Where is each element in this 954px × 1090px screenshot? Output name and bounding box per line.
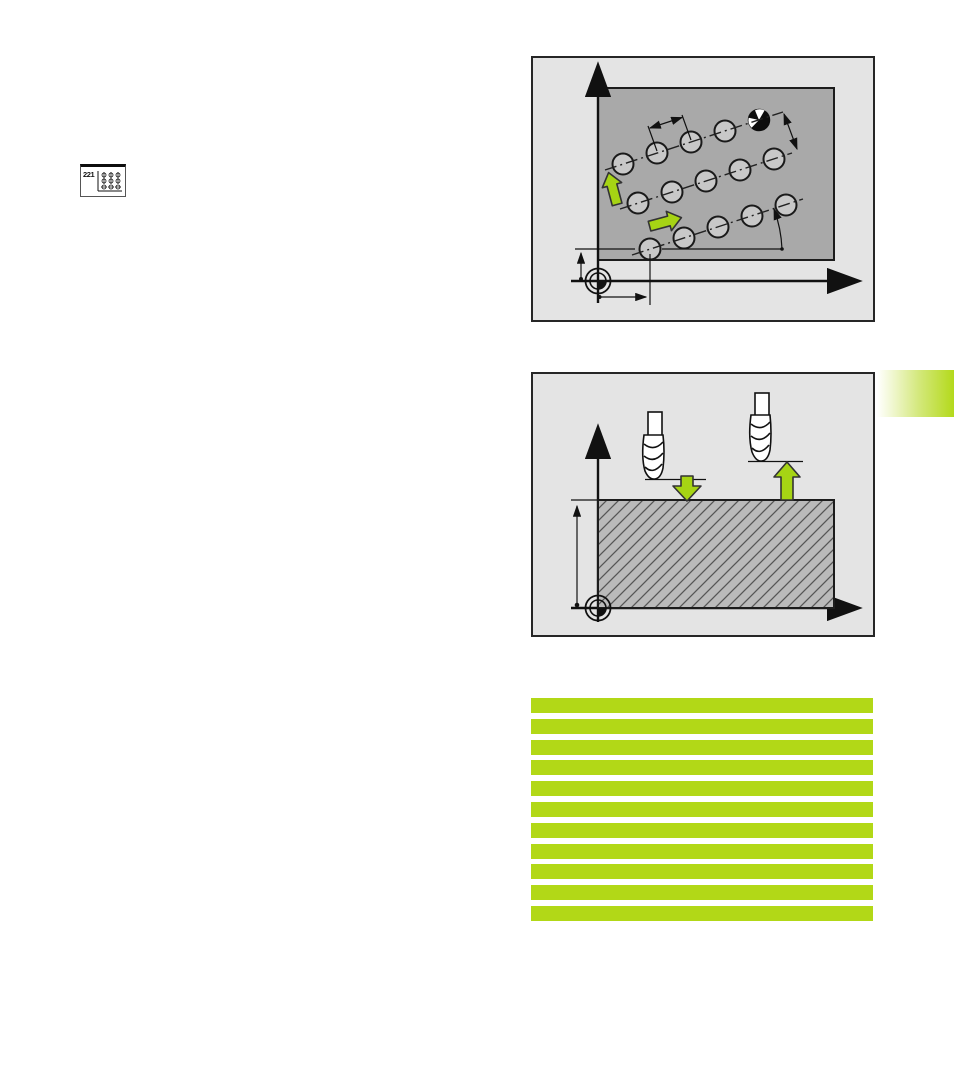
hole-pattern-figure xyxy=(531,56,875,322)
highlight-bar xyxy=(531,844,873,859)
highlight-bar xyxy=(531,698,873,713)
highlight-bar xyxy=(531,802,873,817)
workpiece-cross-section xyxy=(598,500,834,608)
tool-infeed-retract-figure xyxy=(531,372,875,637)
datum-symbol-icon xyxy=(586,596,611,621)
highlight-bar xyxy=(531,781,873,796)
highlight-bar xyxy=(531,885,873,900)
highlight-bar xyxy=(531,740,873,755)
highlight-bar xyxy=(531,906,873,921)
pattern-grid-icon xyxy=(94,168,124,195)
datum-symbol-icon xyxy=(586,269,611,294)
highlight-bar xyxy=(531,823,873,838)
highlight-bar xyxy=(531,760,873,775)
cycle-221-softkey: 221 xyxy=(80,164,126,197)
highlight-bar xyxy=(531,864,873,879)
highlight-bar xyxy=(531,719,873,734)
softkey-label: 221 xyxy=(83,170,94,179)
highlight-bars xyxy=(531,698,873,927)
section-tab xyxy=(877,370,954,417)
